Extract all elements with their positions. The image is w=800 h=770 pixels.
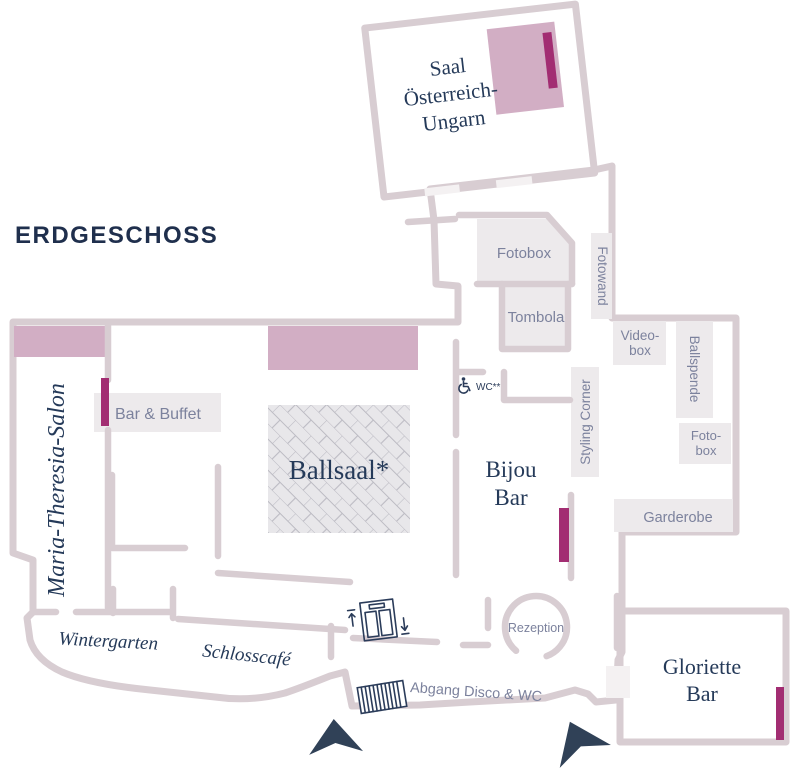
area-label-videobox-line2: box <box>629 343 651 358</box>
room-label-schlosscafe: Schlosscafé <box>201 640 293 670</box>
area-label-fotobox-small-line1: Foto- <box>691 428 721 443</box>
entrance-arrow-icon-right <box>544 710 611 767</box>
area-label-tombola: Tombola <box>508 309 565 326</box>
area-label-fotobox-small-line2: box <box>696 443 717 458</box>
floorplan-page: Saal Österreich- Ungarn <box>0 0 800 770</box>
room-label-gloriette-line1: Gloriette <box>663 654 741 679</box>
area-label-videobox-line1: Video- <box>621 328 660 343</box>
room-label-maria-theresia: Maria-Theresia-Salon <box>44 383 70 598</box>
door-marker-maria-theresia <box>101 378 109 426</box>
stage-maria-theresia <box>14 326 106 357</box>
room-label-saal-line2: Österreich- <box>402 77 499 112</box>
room-label-bijou-line1: Bijou <box>485 457 537 482</box>
area-label-rezeption: Rezeption <box>508 621 564 635</box>
area-label-wc: WC** <box>476 382 501 393</box>
area-label-fotowand: Fotowand <box>595 246 610 305</box>
room-label-ballsaal: Ballsaal* <box>289 455 389 485</box>
area-label-garderobe: Garderobe <box>643 510 712 526</box>
stage-ballsaal <box>268 326 418 370</box>
gloriette-passage-opening <box>606 666 630 698</box>
room-saal-oesterreich-ungarn: Saal Österreich- Ungarn <box>365 4 595 197</box>
area-label-ballspende: Ballspende <box>687 336 702 403</box>
door-marker-bijou <box>559 508 569 562</box>
page-title: ERDGESCHOSS <box>15 222 218 249</box>
area-label-fotobox: Fotobox <box>497 245 552 262</box>
entrance-arrow-icon-left <box>307 717 363 755</box>
room-label-gloriette-line2: Bar <box>686 681 718 706</box>
room-label-bijou-line2: Bar <box>494 485 528 510</box>
floorplan-svg: Saal Österreich- Ungarn <box>0 0 800 770</box>
room-label-saal-line1: Saal <box>428 53 467 81</box>
door-marker-gloriette <box>776 687 784 740</box>
room-label-saal-line3: Ungarn <box>421 105 487 136</box>
area-label-styling-corner: Styling Corner <box>578 379 593 465</box>
room-label-wintergarten: Wintergarten <box>58 628 159 654</box>
wheelchair-icon <box>459 377 470 393</box>
area-label-bar-buffet: Bar & Buffet <box>115 406 202 423</box>
